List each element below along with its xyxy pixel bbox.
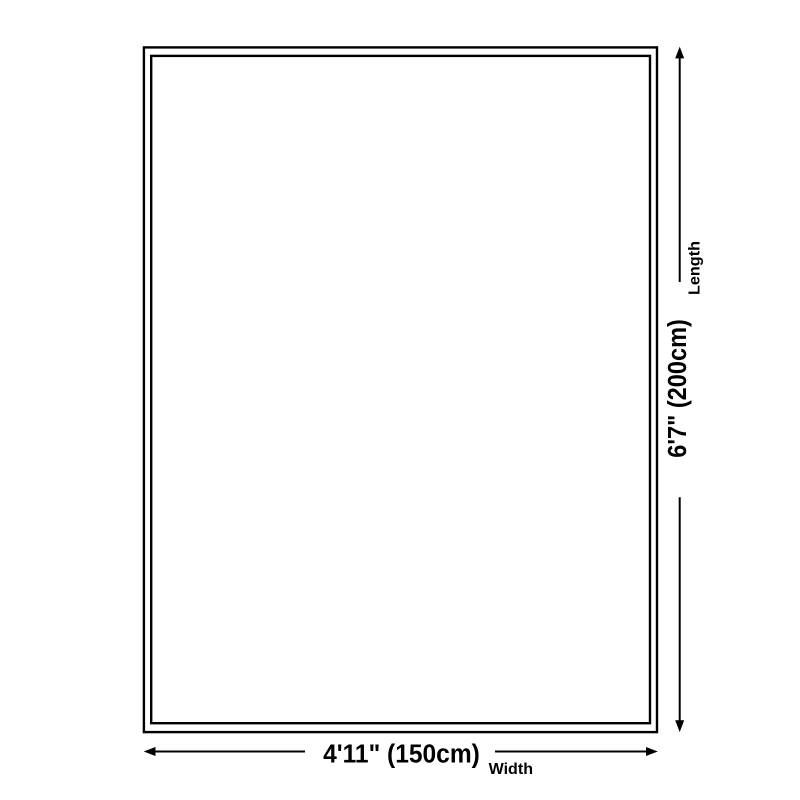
svg-text:Length: Length — [687, 241, 704, 295]
svg-text:4'11" (150cm): 4'11" (150cm) — [323, 740, 480, 768]
svg-text:6'7" (200cm): 6'7" (200cm) — [664, 319, 692, 458]
svg-text:Width: Width — [489, 761, 533, 778]
